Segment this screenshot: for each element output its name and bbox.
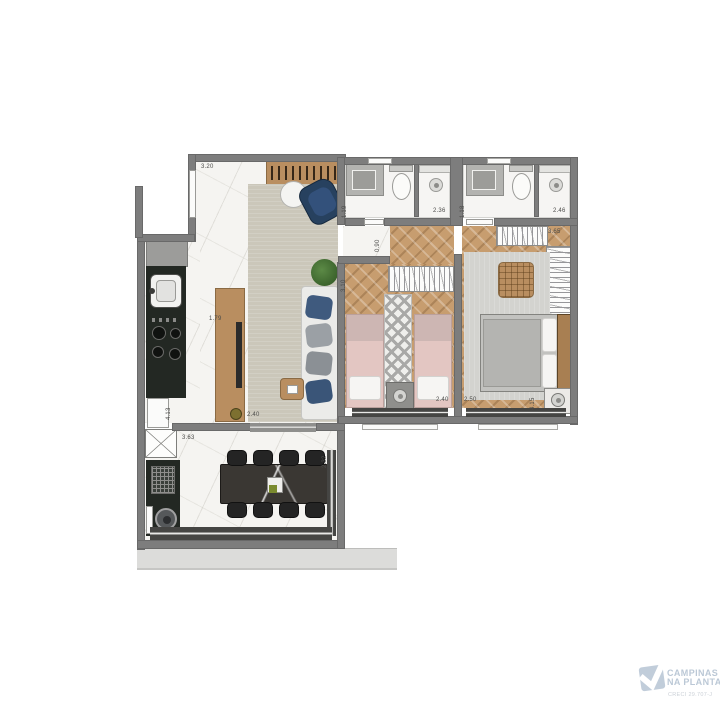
hall-floor [343,226,395,260]
kitchen-shaft [146,240,188,267]
dimension-label: 1.18 [460,206,466,218]
washing-machine-door [163,516,171,524]
floor-plan-canvas: 3.20 1.79 2.40 4.13 3.63 2.32 1.19 2.36 … [0,0,720,720]
dimension-label: 2.32 [322,456,328,468]
dimension-label: 2.46 [553,208,565,214]
single-bed-left-fold [347,315,383,341]
bath1-basin [352,170,376,190]
wall-bedroom-divider [454,254,462,424]
dining-chair [227,502,247,518]
kitchen-faucet [149,288,155,294]
bath2-toilet-tank [509,165,533,172]
sideboard-items [271,166,337,180]
kitchen-sink [150,274,182,308]
drying-rack [151,466,175,494]
tv [236,322,242,388]
bedroom2-window [466,408,566,417]
bath1-sink-counter [346,164,384,196]
dimension-label: 1.19 [342,206,348,218]
dining-chair [253,450,273,466]
watermark-logo: CAMPINAS NA PLANTA CRECI 29.707-J [640,666,720,698]
cooktop-burner [169,348,181,360]
bath2-toilet [512,173,531,200]
wall-dining-bottom [137,540,345,549]
dimension-label: 0.90 [375,240,381,252]
logo-line2: NA PLANTA [667,678,720,687]
service-shaft [145,429,177,458]
wall-dining-right [337,424,345,549]
pouf [498,262,534,298]
dimension-label: 2.36 [433,208,445,214]
wall-bath1-bottom-b [384,218,456,226]
bath1-door [364,219,384,225]
sofa-pillow-navy [305,294,334,320]
wall-right-outer [570,157,578,425]
dining-chair [227,450,247,466]
cooktop-burner [152,346,164,358]
bedroom1-lamp [393,389,407,403]
dining-chair [279,502,299,518]
bedroom2-lamp-center [556,398,561,403]
kitchen-sink-basin [156,280,176,302]
dining-chair [305,502,325,518]
plant [311,259,338,286]
wall-left-outer [137,234,145,550]
sofa-pillow-navy2 [305,378,334,404]
double-bed-headboard [557,314,571,392]
checkmark-icon [638,664,665,691]
wall-living-dining-a [172,423,252,431]
bath1-shower-shelf [419,165,452,173]
bedroom1-window-sill [362,424,438,430]
cooktop-burner [152,326,166,340]
dining-chair [253,502,273,518]
floor-lamp [230,408,242,420]
living-dining-glass-door [250,423,316,432]
bath2-divider-wall [534,163,539,217]
cooktop-knobs [152,318,180,322]
bedroom1-wardrobe [388,266,454,292]
dining-side-glass [327,450,336,536]
bath2-window [487,158,511,164]
bedroom2-window-sill [478,424,558,430]
wall-living-dining-b [316,423,345,431]
dimension-label: 4.13 [166,408,172,420]
dimension-label: 2.50 [464,397,476,403]
wall-bedroom1-top [338,256,390,264]
bath2-sink-counter [466,164,504,196]
single-bed-left-pillow [349,376,381,400]
logo-creci: CRECI 29.707-J [668,692,720,698]
dining-centerpiece-green [269,485,277,493]
dimension-label: 3.10 [341,280,347,292]
bedroom2-lamp [551,393,565,407]
bath2-basin [472,170,496,190]
coffee-table-item [287,385,298,394]
bath1-divider-wall [414,163,419,217]
bedroom2-wardrobe-top [496,226,548,246]
dining-chair [279,450,299,466]
wall-bedrooms-bottom [338,416,578,424]
bedroom1-window [352,408,448,417]
double-bed-blanket [483,319,541,387]
wall-bath1-bottom-a [345,218,365,226]
dining-table [220,464,328,504]
bath2-shower-dot [554,183,559,188]
bath1-window [368,158,392,164]
wall-kitchen-top [137,234,195,242]
cooktop-burner [170,328,181,339]
double-bed-pillow [542,354,557,388]
bath2-door [466,219,493,225]
dimension-label: 2.40 [436,397,448,403]
bath1-toilet-tank [389,165,413,172]
wall-bath2-bottom-b [494,218,578,226]
single-bed-right-fold [415,315,451,341]
bath2-shower-head [549,178,563,192]
dimension-label: 3.20 [201,164,213,170]
wall-exterior-stub [135,186,143,238]
dimension-label: 3.65 [548,229,560,235]
balcony-slab [137,548,397,570]
bedroom1-lamp-center [398,394,403,399]
bath1-toilet [392,173,411,200]
double-bed-pillow [542,318,557,352]
dining-window [150,527,332,540]
sofa-pillow-gray2 [305,351,333,377]
dimension-label: 1.79 [209,316,221,322]
dimension-label: 4.15 [530,398,536,410]
dimension-label: 2.40 [247,412,259,418]
dimension-label: 3.63 [182,435,194,441]
bath1-shower-dot [434,183,439,188]
bath1-shower-head [429,178,443,192]
coffee-table [280,378,304,400]
armchair-seat [305,185,338,219]
sofa-pillow-gray [305,323,334,349]
bath2-shower-shelf [539,165,572,173]
hall-wood-floor [390,226,454,266]
wall-top-living [188,154,346,162]
entrance-door [189,170,196,218]
